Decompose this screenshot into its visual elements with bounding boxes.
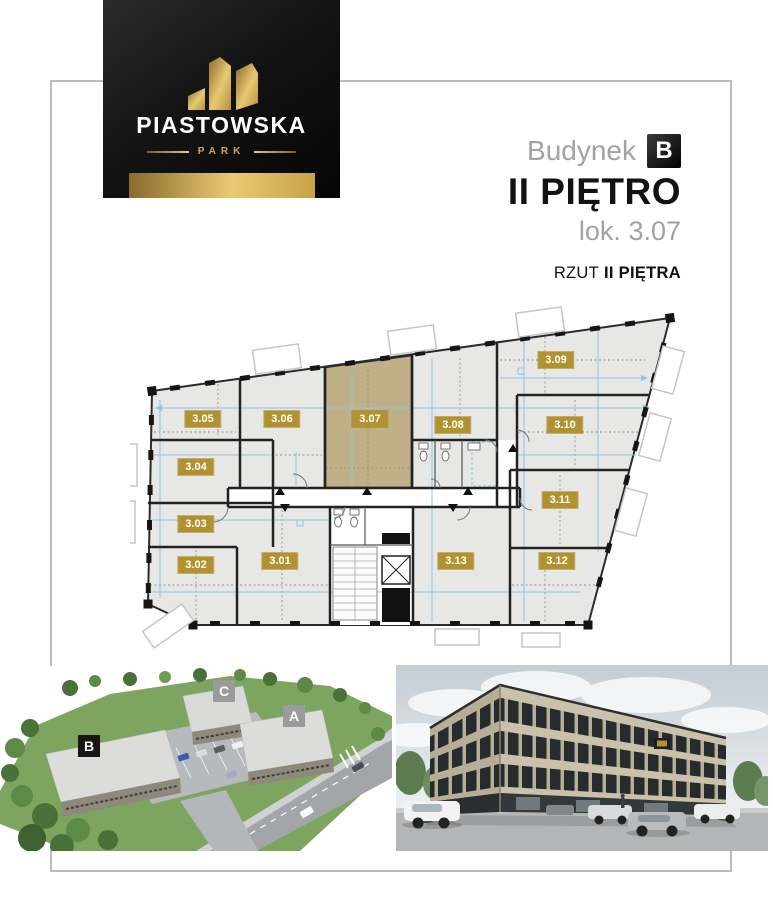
header: Budynek B II PIĘTRO lok. 3.07 RZUTII PIĘ… — [508, 134, 681, 283]
gold-line-left — [147, 151, 189, 153]
stairs — [333, 547, 377, 620]
plan-caption-prefix: RZUT — [554, 264, 599, 282]
building-render — [396, 665, 768, 851]
logo: PIASTOWSKA PARK — [103, 0, 340, 198]
unit-badge-3-08: 3.08 — [435, 417, 470, 433]
unit-label: lok. 3.07 — [508, 216, 681, 247]
floor-title: II PIĘTRO — [508, 171, 681, 213]
facade-logo — [654, 738, 670, 749]
unit-badge-3-02: 3.02 — [178, 557, 213, 573]
logo-subtitle-row: PARK — [103, 146, 340, 157]
building-label: Budynek — [527, 135, 636, 167]
logo-subtitle: PARK — [198, 146, 246, 157]
svg-text:C: C — [219, 683, 229, 699]
svg-text:B: B — [84, 738, 94, 754]
floor-plan — [130, 300, 750, 655]
unit-badge-3-03: 3.03 — [178, 516, 213, 532]
site-badge-b: B — [78, 735, 100, 757]
flyer-page: PIASTOWSKA PARK Budynek B II PIĘTRO lok.… — [0, 0, 773, 918]
unit-badge-3-11: 3.11 — [543, 492, 578, 508]
unit-badge-3-13: 3.13 — [438, 553, 473, 569]
building-row: Budynek B — [508, 134, 681, 168]
site-badge-c: C — [213, 680, 235, 702]
logo-building-icon — [103, 0, 340, 112]
floor-plan-drawing — [130, 300, 750, 655]
svg-text:A: A — [289, 708, 299, 724]
gold-line-right — [254, 151, 296, 153]
unit-badge-3-04: 3.04 — [178, 459, 213, 475]
unit-badge-3-06: 3.06 — [264, 411, 299, 427]
logo-gold-bar — [129, 173, 315, 198]
plan-caption-bold: II PIĘTRA — [604, 264, 681, 282]
building-badge: B — [647, 134, 681, 168]
unit-badge-3-07: 3.07 — [352, 411, 387, 427]
unit-badge-3-05: 3.05 — [185, 411, 220, 427]
unit-badge-3-09: 3.09 — [538, 352, 573, 368]
site-badge-a: A — [283, 705, 305, 727]
logo-title: PIASTOWSKA — [103, 112, 340, 139]
unit-badge-3-10: 3.10 — [547, 417, 582, 433]
unit-badge-3-01: 3.01 — [262, 553, 297, 569]
unit-badge-3-12: 3.12 — [539, 553, 574, 569]
aerial-site-view: B C A — [0, 666, 392, 851]
plan-caption: RZUTII PIĘTRA — [508, 264, 681, 283]
